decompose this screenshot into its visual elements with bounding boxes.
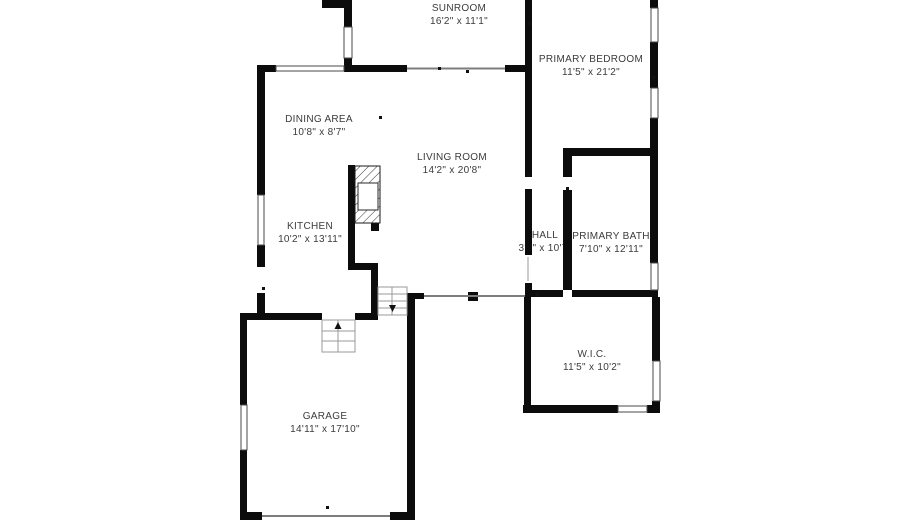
floor-plan-drawing: [0, 0, 900, 529]
window-bath-right: [651, 263, 658, 290]
room-dimensions: 11'5" x 10'2": [563, 361, 621, 374]
room-label-living-room: LIVING ROOM 14'2" x 20'8": [417, 151, 487, 177]
window-dining-top: [276, 66, 344, 71]
room-name: W.I.C.: [563, 348, 621, 361]
room-name: KITCHEN: [278, 220, 342, 233]
window-sunroom-left: [344, 27, 352, 58]
room-dimensions: 14'2" x 20'8": [417, 164, 487, 177]
room-label-dining-area: DINING AREA 10'8" x 8'7": [285, 113, 353, 139]
stairs-down-arrow-icon: [389, 305, 396, 312]
window-wic-right: [653, 361, 660, 401]
fireplace: [355, 166, 380, 223]
window-garage-left: [241, 405, 247, 450]
room-dimensions: 16'2" x 11'1": [430, 15, 488, 28]
window-wic-bottom: [618, 406, 647, 412]
room-name: PRIMARY BATH: [572, 230, 650, 243]
room-dimensions: 7'10" x 12'11": [572, 243, 650, 256]
room-dimensions: 10'2" x 13'11": [278, 233, 342, 246]
room-dimensions: 14'11" x 17'10": [290, 423, 360, 436]
fireplace-hatch: [355, 166, 380, 223]
room-label-sunroom: SUNROOM 16'2" x 11'1": [430, 2, 488, 28]
room-name: PRIMARY BEDROOM: [539, 53, 643, 66]
window-bedroom-upper: [651, 8, 658, 42]
fireplace-firebox: [358, 183, 378, 210]
room-name: SUNROOM: [430, 2, 488, 15]
room-dimensions: 3'3" x 10'7": [519, 242, 572, 255]
stairs-up-arrow-icon: [335, 322, 342, 329]
room-label-garage: GARAGE 14'11" x 17'10": [290, 410, 360, 436]
floor-plan: SUNROOM 16'2" x 11'1" PRIMARY BEDROOM 11…: [0, 0, 900, 529]
room-dimensions: 10'8" x 8'7": [285, 126, 353, 139]
room-label-hall: HALL 3'3" x 10'7": [519, 229, 572, 255]
room-name: DINING AREA: [285, 113, 353, 126]
window-kitchen-left: [258, 195, 264, 245]
room-name: GARAGE: [290, 410, 360, 423]
room-name: HALL: [519, 229, 572, 242]
room-label-primary-bath: PRIMARY BATH 7'10" x 12'11": [572, 230, 650, 256]
room-label-kitchen: KITCHEN 10'2" x 13'11": [278, 220, 342, 246]
room-label-primary-bedroom: PRIMARY BEDROOM 11'5" x 21'2": [539, 53, 643, 79]
room-label-wic: W.I.C. 11'5" x 10'2": [563, 348, 621, 374]
stairs-lower: [322, 320, 355, 352]
stairs-upper: [378, 287, 407, 315]
room-name: LIVING ROOM: [417, 151, 487, 164]
window-bedroom-lower: [651, 88, 658, 118]
room-dimensions: 11'5" x 21'2": [539, 66, 643, 79]
